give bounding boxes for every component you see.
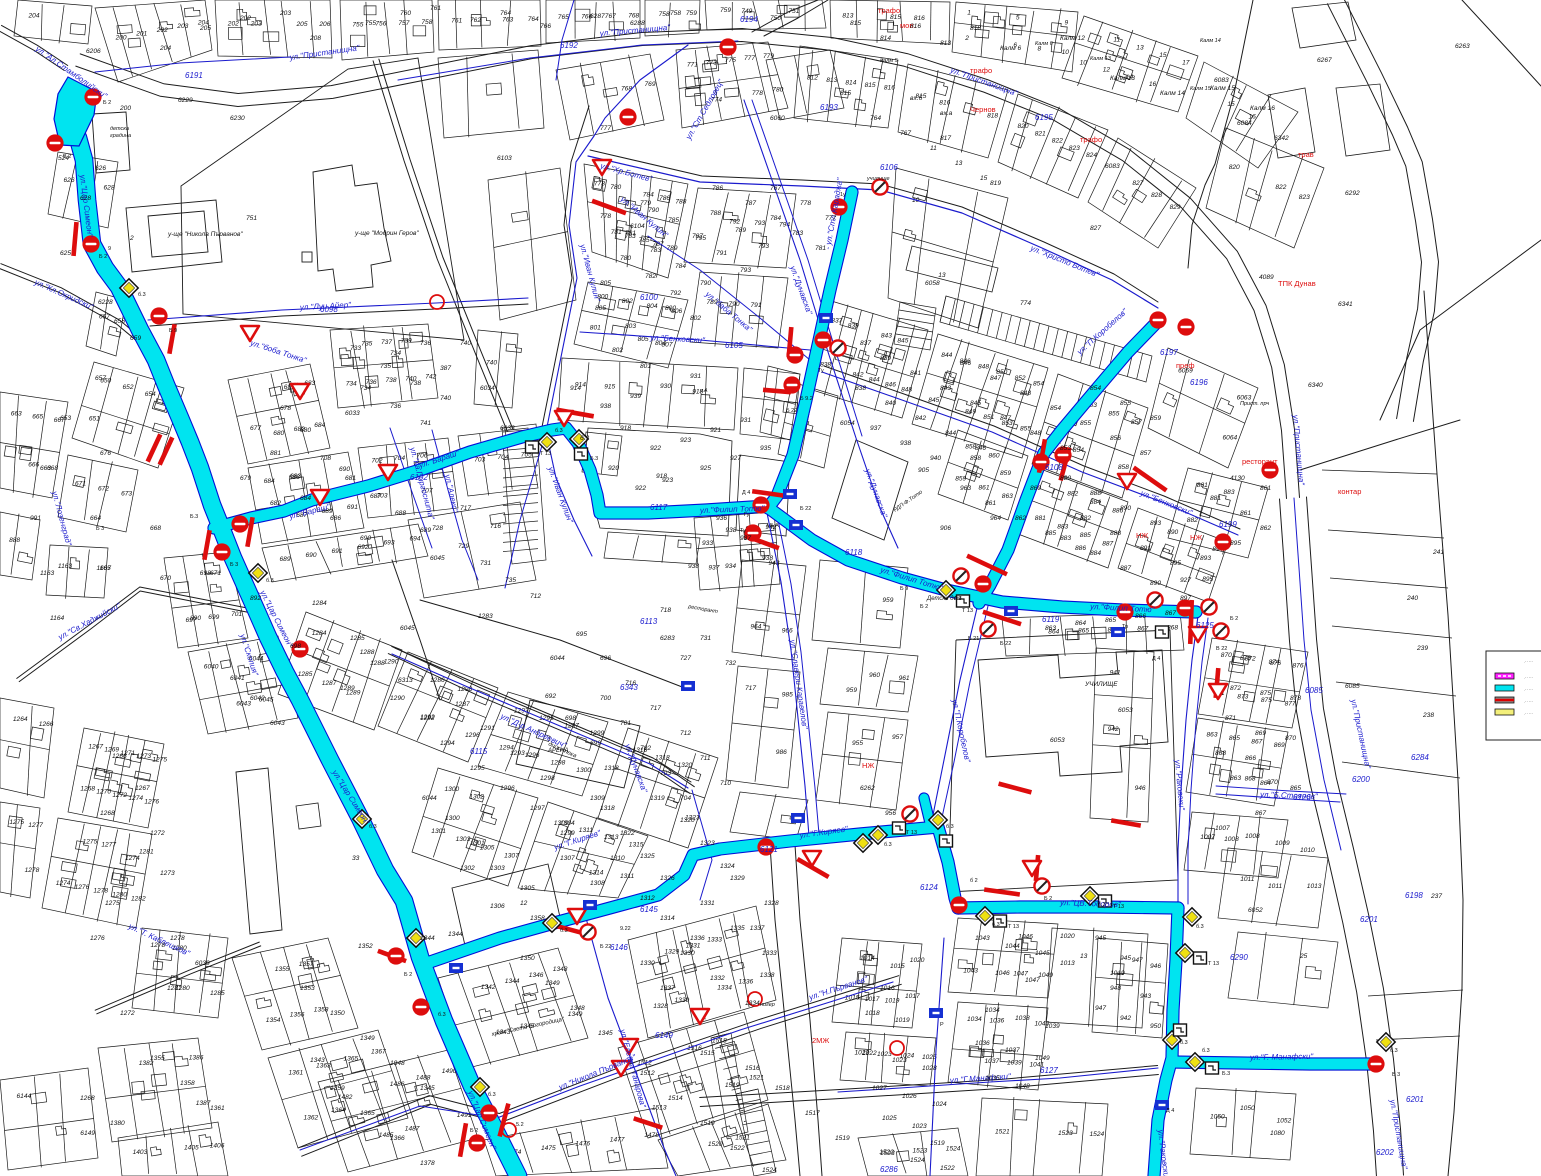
svg-text:1302: 1302	[469, 794, 484, 801]
svg-text:1342: 1342	[481, 984, 496, 991]
svg-text:960: 960	[869, 672, 880, 679]
svg-text:789: 789	[667, 245, 678, 252]
svg-text:1361: 1361	[210, 1105, 225, 1112]
svg-text:765: 765	[558, 14, 569, 21]
svg-text:Калм 12: Калм 12	[1060, 35, 1085, 42]
svg-text:1523: 1523	[880, 1150, 895, 1157]
svg-text:691: 691	[347, 504, 358, 511]
svg-text:Б 21: Б 21	[968, 636, 979, 642]
svg-text:6.3: 6.3	[580, 435, 589, 442]
svg-text:684: 684	[264, 478, 275, 485]
svg-text:790: 790	[648, 207, 659, 214]
svg-text:842: 842	[853, 371, 864, 378]
svg-text:712: 712	[530, 593, 541, 600]
svg-text:1300: 1300	[576, 767, 591, 774]
svg-text:792: 792	[670, 290, 681, 297]
svg-text:941: 941	[1110, 670, 1121, 677]
svg-text:883: 883	[1224, 489, 1235, 496]
svg-text:938: 938	[600, 403, 611, 410]
svg-text:1011: 1011	[1268, 883, 1283, 890]
svg-text:6104: 6104	[630, 223, 645, 230]
svg-text:738: 738	[410, 380, 421, 387]
svg-text:882: 882	[1080, 515, 1091, 522]
svg-text:915: 915	[604, 383, 615, 390]
svg-text:816: 816	[884, 84, 895, 91]
svg-text:704: 704	[498, 454, 509, 461]
svg-text:761: 761	[430, 5, 441, 12]
svg-text:816: 816	[910, 23, 921, 30]
svg-text:1008: 1008	[1224, 836, 1239, 843]
svg-text:1283: 1283	[478, 613, 493, 620]
svg-text:892: 892	[250, 595, 261, 602]
svg-text:845: 845	[928, 397, 939, 404]
svg-text:1353: 1353	[300, 985, 315, 992]
svg-text:13: 13	[1136, 44, 1144, 51]
svg-text:6228: 6228	[98, 299, 113, 306]
svg-text:1037: 1037	[1005, 1047, 1020, 1054]
svg-text:1323: 1323	[700, 840, 715, 847]
svg-text:Б 22: Б 22	[600, 944, 611, 950]
svg-text:1522: 1522	[940, 1165, 955, 1172]
svg-text:701: 701	[620, 720, 631, 727]
svg-text:782: 782	[645, 273, 656, 280]
svg-text:781: 781	[611, 229, 622, 236]
svg-text:786: 786	[712, 185, 723, 192]
svg-text:814: 814	[845, 80, 856, 87]
svg-text:1285: 1285	[298, 671, 313, 678]
svg-text:783: 783	[792, 230, 803, 237]
svg-text:6105: 6105	[725, 341, 743, 350]
svg-text:1386: 1386	[189, 1055, 204, 1062]
svg-text:790: 790	[700, 280, 711, 287]
svg-text:843: 843	[881, 332, 892, 339]
svg-text:6043: 6043	[236, 701, 251, 708]
svg-text:859: 859	[1150, 415, 1161, 422]
svg-text:805: 805	[600, 280, 611, 287]
svg-text:882: 882	[1187, 517, 1198, 524]
svg-text:673: 673	[121, 490, 132, 497]
svg-text:.·· ···: .·· ···	[1524, 675, 1533, 680]
svg-text:1303: 1303	[456, 836, 471, 843]
svg-text:вх.а: вх.а	[940, 110, 953, 117]
svg-text:881: 881	[270, 450, 281, 457]
svg-text:1336: 1336	[690, 935, 705, 942]
svg-text:1013: 1013	[1060, 960, 1075, 967]
svg-text:Т 13: Т 13	[540, 451, 551, 457]
svg-text:1334: 1334	[717, 985, 732, 992]
svg-text:Б.3: Б.3	[1222, 1071, 1230, 1077]
svg-text:750: 750	[770, 15, 781, 22]
svg-text:1278: 1278	[93, 888, 108, 895]
svg-text:758: 758	[670, 10, 681, 17]
svg-text:659: 659	[130, 335, 141, 342]
svg-text:б.3: б.3	[1098, 902, 1106, 908]
svg-text:Калм 5: Калм 5	[880, 58, 899, 64]
svg-text:1023: 1023	[912, 1123, 927, 1130]
svg-text:777: 777	[600, 125, 611, 132]
svg-text:206: 206	[318, 21, 330, 28]
svg-text:203: 203	[250, 21, 262, 28]
svg-text:б.3: б.3	[138, 292, 146, 298]
svg-text:4130: 4130	[1230, 475, 1245, 482]
svg-text:867: 867	[1251, 738, 1262, 745]
svg-text:773: 773	[706, 59, 717, 66]
svg-text:786: 786	[659, 195, 670, 202]
svg-text:711: 711	[700, 755, 711, 762]
svg-text:6042: 6042	[250, 695, 265, 702]
svg-text:6127: 6127	[1040, 1066, 1058, 1075]
svg-text:1378: 1378	[420, 1160, 435, 1167]
svg-text:1387: 1387	[196, 1100, 211, 1107]
svg-text:702: 702	[640, 745, 651, 752]
svg-text:6039: 6039	[195, 960, 210, 967]
svg-text:840: 840	[885, 400, 896, 407]
svg-text:1312: 1312	[640, 895, 655, 902]
svg-text:849: 849	[965, 408, 976, 415]
svg-text:1164: 1164	[50, 615, 65, 622]
svg-text:684: 684	[300, 495, 311, 502]
svg-text:6040: 6040	[204, 664, 219, 671]
svg-text:876: 876	[1270, 660, 1281, 667]
svg-text:758: 758	[421, 19, 432, 26]
svg-text:6195: 6195	[1035, 113, 1053, 122]
svg-text:893: 893	[1200, 555, 1211, 562]
svg-text:751: 751	[788, 8, 799, 15]
svg-text:689: 689	[280, 556, 291, 563]
svg-text:863: 863	[1045, 625, 1056, 632]
svg-text:861: 861	[1240, 510, 1251, 517]
svg-text:888: 888	[1090, 490, 1101, 497]
svg-text:755: 755	[352, 22, 363, 29]
svg-text:696: 696	[600, 655, 611, 662]
svg-text:848: 848	[901, 386, 912, 393]
svg-text:6196: 6196	[1190, 378, 1208, 387]
svg-text:1049: 1049	[1035, 1055, 1050, 1062]
svg-text:9: 9	[1065, 19, 1069, 26]
svg-text:239: 239	[1416, 645, 1428, 652]
svg-text:762: 762	[470, 17, 481, 24]
svg-text:1524: 1524	[910, 1157, 925, 1164]
svg-text:686: 686	[330, 515, 341, 522]
svg-text:922: 922	[650, 445, 661, 452]
svg-text:1046: 1046	[995, 970, 1010, 977]
svg-text:1297: 1297	[530, 805, 545, 812]
svg-text:б.3: б.3	[1390, 1048, 1398, 1054]
svg-text:16: 16	[1149, 81, 1157, 88]
svg-text:1039: 1039	[1045, 1023, 1060, 1030]
svg-text:852: 852	[1015, 375, 1026, 382]
svg-text:815: 815	[865, 82, 876, 89]
svg-text:628: 628	[104, 185, 115, 192]
svg-text:Прист. прч: Прист. прч	[1240, 401, 1269, 407]
svg-text:780: 780	[610, 184, 621, 191]
svg-text:890: 890	[1120, 505, 1131, 512]
svg-text:6052: 6052	[1248, 907, 1263, 914]
svg-text:202: 202	[227, 20, 239, 27]
svg-text:204: 204	[159, 45, 171, 52]
svg-text:768: 768	[628, 12, 639, 19]
svg-text:1518: 1518	[775, 1085, 790, 1092]
svg-text:1276: 1276	[90, 935, 105, 942]
svg-text:666: 666	[28, 462, 39, 469]
svg-text:9: 9	[108, 246, 111, 252]
svg-text:1337: 1337	[750, 925, 765, 932]
svg-text:1025: 1025	[882, 1115, 897, 1122]
svg-text:740: 740	[460, 340, 471, 347]
svg-text:863: 863	[1002, 493, 1013, 500]
svg-text:855: 855	[1120, 400, 1131, 407]
svg-text:Б 22: Б 22	[800, 506, 811, 512]
svg-text:888: 888	[9, 537, 20, 544]
svg-text:626: 626	[95, 165, 106, 172]
svg-text:1278: 1278	[170, 935, 185, 942]
svg-text:градина: градина	[110, 133, 131, 139]
svg-text:Б.3: Б.3	[590, 456, 598, 462]
svg-text:1519: 1519	[835, 1135, 850, 1142]
svg-text:1008: 1008	[1245, 833, 1260, 840]
svg-text:1285: 1285	[210, 990, 225, 997]
svg-text:6192: 6192	[560, 41, 578, 50]
svg-text:Т 13: Т 13	[962, 608, 973, 614]
svg-text:Б 9.2: Б 9.2	[800, 396, 813, 402]
svg-text:1302: 1302	[460, 865, 475, 872]
svg-text:11: 11	[1113, 37, 1120, 44]
svg-text:817: 817	[940, 135, 951, 142]
svg-text:876: 876	[1293, 662, 1304, 669]
svg-text:524: 524	[58, 155, 69, 162]
svg-text:1514: 1514	[668, 1095, 683, 1102]
svg-text:1296: 1296	[465, 732, 480, 739]
svg-text:1338: 1338	[760, 972, 775, 979]
svg-text:1272: 1272	[120, 1010, 135, 1017]
svg-text:2МЖ: 2МЖ	[812, 1036, 829, 1045]
svg-text:734: 734	[346, 381, 357, 388]
svg-text:878: 878	[1290, 695, 1301, 702]
svg-text:815: 815	[850, 20, 861, 27]
svg-text:12: 12	[1103, 67, 1111, 74]
svg-text:1023: 1023	[892, 1057, 907, 1064]
svg-text:700: 700	[600, 695, 611, 702]
svg-text:651: 651	[89, 416, 100, 423]
svg-text:Б 9: Б 9	[169, 328, 177, 334]
svg-text:1294: 1294	[440, 740, 455, 747]
svg-text:1329: 1329	[730, 875, 745, 882]
svg-text:690: 690	[306, 552, 317, 559]
svg-text:780: 780	[772, 87, 783, 94]
svg-text:387: 387	[440, 365, 451, 372]
svg-text:1307: 1307	[504, 853, 519, 860]
svg-text:676: 676	[100, 450, 111, 457]
svg-text:942: 942	[1120, 1015, 1131, 1022]
svg-text:6100: 6100	[640, 293, 658, 302]
svg-text:1293: 1293	[510, 750, 525, 757]
svg-text:6083: 6083	[1214, 77, 1229, 84]
svg-text:891: 891	[1140, 545, 1151, 552]
svg-text:6064: 6064	[1223, 434, 1238, 441]
svg-text:740: 740	[440, 395, 451, 402]
svg-text:4089: 4089	[1259, 274, 1274, 281]
svg-text:663: 663	[40, 465, 51, 472]
svg-text:1515: 1515	[700, 1050, 715, 1057]
svg-text:846: 846	[960, 360, 971, 367]
svg-text:1288: 1288	[370, 660, 385, 667]
svg-text:943: 943	[1140, 993, 1151, 1000]
svg-text:13: 13	[955, 160, 963, 167]
svg-text:664: 664	[90, 515, 101, 522]
svg-text:716: 716	[490, 523, 501, 530]
svg-text:1у: 1у	[840, 192, 846, 198]
svg-text:870: 870	[1285, 735, 1296, 742]
svg-text:688: 688	[395, 510, 406, 517]
svg-text:1287: 1287	[322, 680, 337, 687]
svg-text:6201: 6201	[1360, 915, 1378, 924]
svg-text:914: 914	[570, 385, 581, 392]
svg-text:959: 959	[846, 687, 857, 694]
svg-text:741: 741	[420, 420, 431, 427]
svg-text:1406: 1406	[210, 1142, 225, 1149]
svg-text:Т 13: Т 13	[906, 830, 917, 836]
svg-text:821: 821	[1035, 130, 1046, 137]
svg-text:1280: 1280	[112, 892, 127, 899]
svg-text:858: 858	[1118, 464, 1129, 471]
svg-text:6053: 6053	[1050, 737, 1065, 744]
svg-text:828: 828	[1151, 192, 1162, 199]
svg-text:861: 861	[985, 500, 996, 507]
svg-text:864: 864	[1075, 620, 1086, 627]
svg-text:6340: 6340	[1308, 382, 1323, 389]
svg-text:Калм 6: Калм 6	[1000, 45, 1022, 52]
svg-text:735: 735	[505, 577, 516, 584]
svg-text:1275: 1275	[9, 819, 24, 826]
svg-text:950: 950	[1150, 1023, 1161, 1030]
svg-text:Калм 15: Калм 15	[1210, 85, 1235, 92]
svg-text:5: 5	[1016, 14, 1020, 21]
svg-text:813: 813	[826, 77, 837, 84]
svg-text:937: 937	[740, 535, 751, 542]
svg-text:657: 657	[95, 375, 106, 382]
svg-text:1348: 1348	[390, 1060, 405, 1067]
svg-text:653: 653	[60, 415, 71, 422]
svg-text:868: 868	[1245, 775, 1256, 782]
svg-text:1333: 1333	[707, 937, 722, 944]
svg-text:1358: 1358	[180, 1080, 195, 1087]
svg-text:923: 923	[680, 437, 691, 444]
svg-text:1348: 1348	[570, 1005, 585, 1012]
svg-text:1043: 1043	[975, 935, 990, 942]
svg-text:208: 208	[309, 35, 321, 42]
svg-text:699: 699	[208, 614, 219, 621]
svg-text:1333: 1333	[762, 950, 777, 957]
svg-text:1050: 1050	[1240, 1105, 1255, 1112]
svg-text:906: 906	[940, 525, 951, 532]
svg-text:Б 2: Б 2	[404, 972, 412, 978]
svg-text:781: 781	[815, 245, 826, 252]
svg-text:1266: 1266	[112, 753, 127, 760]
svg-text:905: 905	[918, 467, 929, 474]
svg-text:Б.3: Б.3	[190, 514, 198, 520]
svg-text:Р: Р	[940, 1022, 944, 1028]
svg-text:1034: 1034	[967, 1016, 982, 1023]
svg-text:963: 963	[960, 485, 971, 492]
svg-text:778: 778	[800, 200, 811, 207]
svg-text:923: 923	[662, 477, 673, 484]
svg-text:1045: 1045	[1035, 950, 1050, 957]
svg-text:768: 768	[621, 85, 632, 92]
svg-text:1349: 1349	[545, 980, 560, 987]
svg-text:813: 813	[940, 40, 951, 47]
svg-text:1364: 1364	[331, 1107, 346, 1114]
svg-text:838: 838	[855, 385, 866, 392]
svg-text:1019: 1019	[885, 998, 900, 1005]
svg-text:1047: 1047	[1025, 977, 1040, 984]
svg-text:200: 200	[119, 105, 131, 112]
svg-text:789: 789	[735, 227, 746, 234]
svg-text:938: 938	[688, 563, 699, 570]
svg-text:б.3: б.3	[488, 1092, 496, 1098]
svg-text:1270: 1270	[96, 789, 111, 796]
svg-text:1331: 1331	[686, 943, 701, 950]
svg-text:845: 845	[897, 337, 908, 344]
svg-text:893: 893	[1150, 520, 1161, 527]
svg-text:6125: 6125	[1196, 621, 1214, 630]
svg-text:771: 771	[687, 62, 698, 69]
svg-text:1267: 1267	[88, 744, 103, 751]
svg-text:1009: 1009	[1275, 840, 1290, 847]
svg-text:1349: 1349	[360, 1035, 375, 1042]
svg-text:764: 764	[870, 115, 881, 122]
svg-text:1332: 1332	[710, 975, 725, 982]
svg-text:939: 939	[630, 393, 641, 400]
svg-text:1049: 1049	[1038, 972, 1053, 979]
svg-text:712: 712	[680, 730, 691, 737]
svg-text:938: 938	[900, 440, 911, 447]
svg-text:663: 663	[11, 410, 22, 417]
svg-text:1305: 1305	[520, 885, 535, 892]
svg-text:1268: 1268	[80, 1095, 95, 1102]
svg-text:1050: 1050	[1210, 1114, 1225, 1121]
svg-text:трав: трав	[1298, 150, 1314, 159]
svg-text:1037: 1037	[985, 1058, 1000, 1065]
svg-text:1027: 1027	[872, 1085, 887, 1092]
svg-text:934: 934	[725, 563, 736, 570]
svg-text:1015: 1015	[890, 963, 905, 970]
svg-text:800: 800	[665, 305, 676, 312]
svg-text:1267: 1267	[135, 785, 150, 792]
svg-text:756: 756	[375, 21, 386, 28]
svg-text:956: 956	[885, 810, 896, 817]
svg-text:804: 804	[647, 303, 658, 310]
svg-text:10: 10	[1062, 49, 1070, 56]
svg-text:757: 757	[398, 20, 409, 27]
svg-text:1292: 1292	[420, 715, 435, 722]
svg-text:1478: 1478	[644, 1132, 659, 1139]
svg-text:882: 882	[1067, 491, 1078, 498]
svg-text:717: 717	[745, 685, 756, 692]
svg-text:1046: 1046	[1018, 933, 1033, 940]
svg-text:947: 947	[1095, 1005, 1106, 1012]
svg-text:689: 689	[420, 527, 431, 534]
svg-text:1334: 1334	[745, 1000, 760, 1007]
svg-text:Калм 15: Калм 15	[1190, 86, 1212, 92]
svg-text:938: 938	[725, 527, 736, 534]
svg-text:1019: 1019	[895, 1017, 910, 1024]
svg-text:6198: 6198	[1405, 891, 1423, 900]
svg-text:668: 668	[150, 525, 161, 532]
svg-text:6083: 6083	[1105, 163, 1120, 170]
svg-text:844: 844	[869, 376, 880, 383]
svg-text:1301: 1301	[431, 828, 446, 835]
svg-text:1355: 1355	[275, 966, 290, 973]
